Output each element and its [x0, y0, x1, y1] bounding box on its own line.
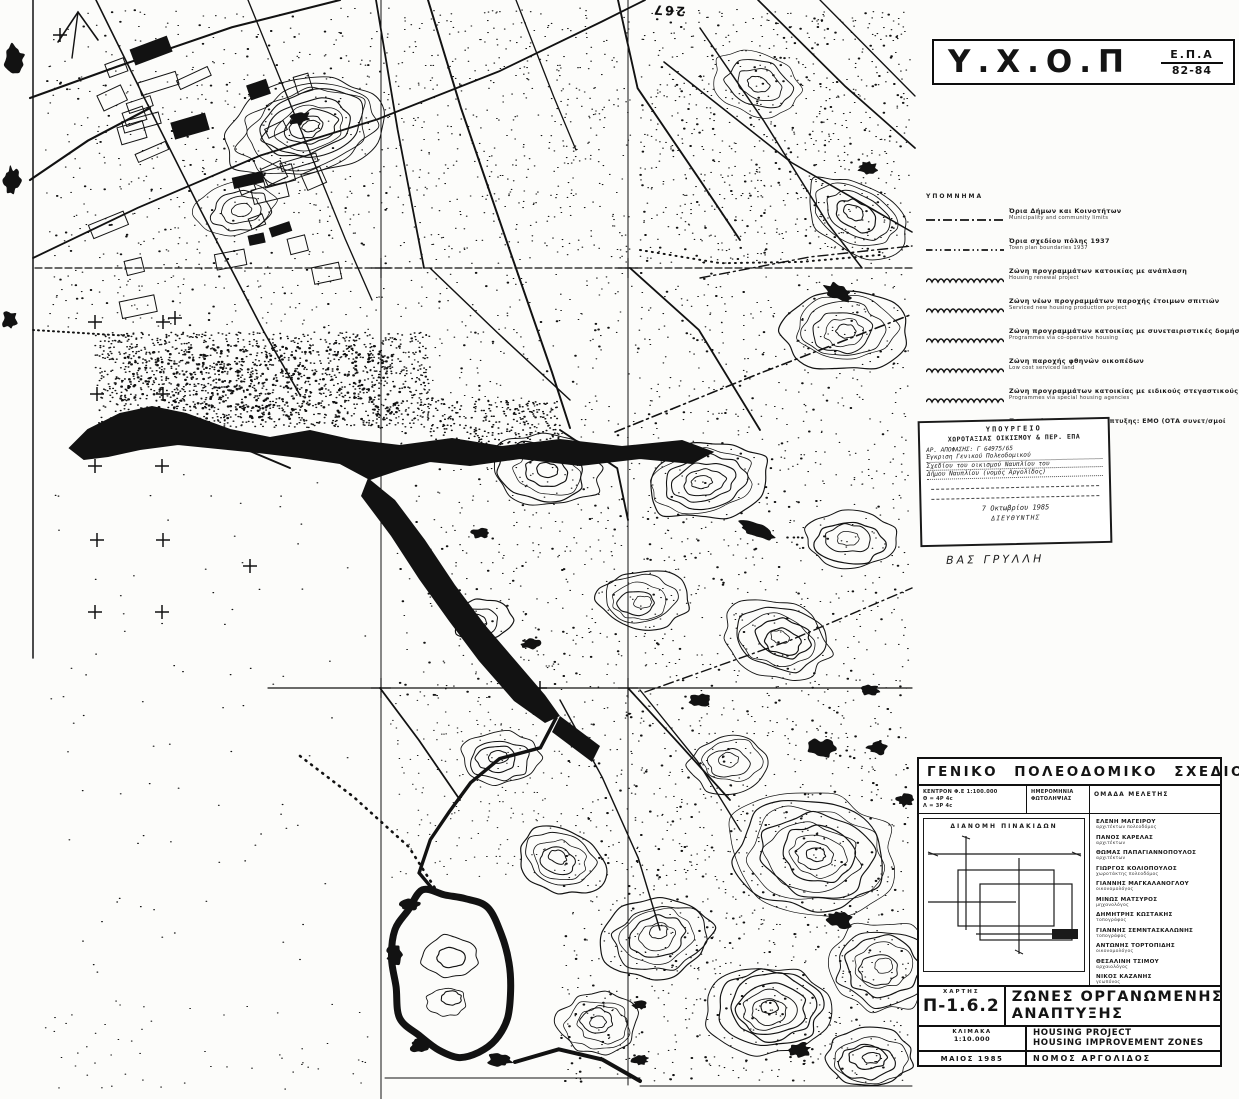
legend-item-sublabel: Programmes via co-operative housing	[1009, 335, 1239, 341]
sheet-index-cell: ΔΙΑΝΟΜΗ ΠΙΝΑΚΙΔΩΝ	[919, 814, 1090, 994]
program-years: 82-84	[1161, 62, 1223, 77]
team-member-role: αρχιτέκτων	[1096, 841, 1218, 846]
team-member: ΘΕΣΑΛΙΝΗ ΤΣΙΜΟΥαρχαιολόγος	[1096, 959, 1218, 970]
team-member: ΔΗΜΗΤΡΗΣ ΚΩΣΤΑΚΗΣτοπογράφος	[1096, 912, 1218, 923]
team-member-role: αρχαιολόγος	[1096, 965, 1218, 970]
map-title-table: ΧΑΡΤΗΣ Π-1.6.2 ΖΩΝΕΣ ΟΡΓΑΝΩΜΕΝΗΣ ΑΝΑΠΤΥΞ…	[917, 985, 1222, 1067]
legend-item-sublabel: Town plan boundaries 1937	[1009, 245, 1110, 251]
photo-center-line: ΚΕΝΤΡΟΝ Φ.Ε 1:100.000	[923, 789, 1022, 796]
legend-item-text: Ζώνη προγραμμάτων κατοικίας με ανάπλασηH…	[1009, 268, 1187, 281]
info-panel-title: ΓΕΝΙΚΟ ΠΟΛΕΟΔΟΜΙΚΟ ΣΧΕΔΙΟ	[919, 759, 1220, 786]
legend-item-label: Ζώνη προγραμμάτων κατοικίας με ειδικούς …	[1009, 388, 1239, 395]
legend-item-sublabel: Housing renewal project	[1009, 275, 1187, 281]
team-member-role: τοπογράφος	[1096, 918, 1218, 923]
legend-item: Ζώνη προγραμμάτων κατοικίας με συνεταιρι…	[926, 328, 1238, 349]
team-member: ΘΩΜΑΣ ΠΑΠΑΓΙΑΝΝΟΠΟΥΛΟΣαρχιτέκτων	[1096, 850, 1218, 861]
scale-cell: ΚΛΙΜΑΚΑ 1:10.000	[919, 1027, 1027, 1050]
map-title-english: HOUSING IMPROVEMENT ZONES	[1033, 1039, 1214, 1049]
sheet-index-label: ΔΙΑΝΟΜΗ ΠΙΝΑΚΙΔΩΝ	[924, 823, 1084, 830]
map-title-cell: ΖΩΝΕΣ ΟΡΓΑΝΩΜΕΝΗΣ ΑΝΑΠΤΥΞΗΣ	[1006, 987, 1230, 1025]
team-member-role: μηχανολόγος	[1096, 903, 1218, 908]
photo-center-line: Θ = 4Ρ 4c	[923, 796, 1022, 803]
legend-item: Όρια Δήμων και ΚοινοτήτωνMunicipality an…	[926, 208, 1238, 229]
legend-item-sublabel: Municipality and community limits	[1009, 215, 1122, 221]
team-member: ΕΛΕΝΗ ΜΑΓΕΙΡΟΥαρχιτέκτων πολεοδόμος	[1096, 819, 1218, 830]
legend-item-sublabel: Programmes via special housing agencies	[1009, 395, 1239, 401]
map-title-en-cell: HOUSING PROJECT HOUSING IMPROVEMENT ZONE…	[1027, 1027, 1220, 1050]
stamp-signature: ΒΑΣ ΓΡΥΛΛΗ	[946, 552, 1045, 567]
program-badge: Ε.Π.Α 82-84	[1161, 48, 1223, 77]
legend-items: Όρια Δήμων και ΚοινοτήτωνMunicipality an…	[926, 208, 1238, 409]
legend-item-text: Ζώνη προγραμμάτων κατοικίας με συνεταιρι…	[1009, 328, 1239, 341]
info-panel: ΓΕΝΙΚΟ ΠΟΛΕΟΔΟΜΙΚΟ ΣΧΕΔΙΟ ΚΕΝΤΡΟΝ Φ.Ε 1:…	[917, 757, 1222, 996]
title-row-3: ΜΑΙΟΣ 1985 ΝΟΜΟΣ ΑΡΓΟΛΙΔΟΣ	[919, 1052, 1220, 1065]
legend-marker-wavy-icon	[926, 330, 1004, 349]
legend-item-text: Ζώνη προγραμμάτων κατοικίας με ειδικούς …	[1009, 388, 1239, 401]
legend-marker-wavy-icon	[926, 270, 1004, 289]
legend-item-label: Όρια Δήμων και Κοινοτήτων	[1009, 208, 1122, 215]
team-member-role: αρχιτέκτων πολεοδόμος	[1096, 825, 1218, 830]
team-member: ΝΙΚΟΣ ΚΑΖΑΝΗΣγεωπόνος	[1096, 974, 1218, 985]
map-title-greek: ΑΝΑΠΤΥΞΗΣ	[1012, 1006, 1224, 1023]
map-number-label: ΧΑΡΤΗΣ	[923, 989, 1000, 995]
legend-item-text: Ζώνη νέων προγραμμάτων παροχής έτοιμων σ…	[1009, 298, 1220, 311]
legend-item: Ζώνη προγραμμάτων κατοικίας με ανάπλασηH…	[926, 268, 1238, 289]
team-member-role: χωροτάκτης πολεοδόμος	[1096, 872, 1218, 877]
team-header-cell: ΟΜΑΔΑ ΜΕΛΕΤΗΣ	[1090, 786, 1220, 813]
legend-marker-wavy-icon	[926, 300, 1004, 319]
agency-title: Υ.Χ.Ο.Π	[948, 44, 1161, 80]
legend-item-text: Όρια Δήμων και ΚοινοτήτωνMunicipality an…	[1009, 208, 1122, 221]
team-member-role: οικονομολόγος	[1096, 887, 1218, 892]
info-panel-header-row: ΚΕΝΤΡΟΝ Φ.Ε 1:100.000 Θ = 4Ρ 4c Λ = 3Ρ 4…	[919, 786, 1220, 814]
photo-date-line: ΦΩΤΟΛΗΨΙΑΣ	[1031, 796, 1085, 803]
map-number: Π-1.6.2	[923, 996, 1000, 1016]
team-member: ΓΙΑΝΝΗΣ ΜΑΓΚΑΛΑΝΟΓΛΟΥοικονομολόγος	[1096, 881, 1218, 892]
legend-marker-dash-dot-icon	[926, 210, 1004, 229]
map-date: ΜΑΙΟΣ 1985	[919, 1052, 1027, 1065]
map-region: ΝΟΜΟΣ ΑΡΓΟΛΙΔΟΣ	[1027, 1052, 1220, 1065]
legend-item-text: Όρια σχεδίου πόλης 1937Town plan boundar…	[1009, 238, 1110, 251]
title-row-2: ΚΛΙΜΑΚΑ 1:10.000 HOUSING PROJECT HOUSING…	[919, 1027, 1220, 1052]
legend-marker-dash-dot-dot-icon	[926, 240, 1004, 259]
legend-item-label: Ζώνη νέων προγραμμάτων παροχής έτοιμων σ…	[1009, 298, 1220, 305]
scanned-map-sheet: { "colors": { "ink": "#141414", "paper":…	[0, 0, 1239, 1099]
sheet-index-box: ΔΙΑΝΟΜΗ ΠΙΝΑΚΙΔΩΝ	[923, 818, 1085, 972]
legend-item-label: Ζώνη παροχής φθηνών οικοπέδων	[1009, 358, 1144, 365]
team-member: ΠΑΝΟΣ ΚΑΡΕΛΑΣαρχιτέκτων	[1096, 835, 1218, 846]
legend-item-sublabel: Low cost serviced land	[1009, 365, 1144, 371]
legend-item: Ζώνη παροχής φθηνών οικοπέδωνLow cost se…	[926, 358, 1238, 379]
legend-item: Ζώνη προγραμμάτων κατοικίας με ειδικούς …	[926, 388, 1238, 409]
legend-item-label: Ζώνη προγραμμάτων κατοικίας με συνεταιρι…	[1009, 328, 1239, 335]
team-member: ΓΙΑΝΝΗΣ ΣΕΜΝΤΑΣΚΑΛΩΝΗΣτοπογράφος	[1096, 928, 1218, 939]
legend-item-label: Ζώνη προγραμμάτων κατοικίας με ανάπλαση	[1009, 268, 1187, 275]
team-member-role: τοπογράφος	[1096, 934, 1218, 939]
legend-item: Όρια σχεδίου πόλης 1937Town plan boundar…	[926, 238, 1238, 259]
map-title-greek: ΖΩΝΕΣ ΟΡΓΑΝΩΜΕΝΗΣ	[1012, 989, 1224, 1006]
program-label: Ε.Π.Α	[1161, 48, 1223, 61]
legend-item-text: Ζώνη παροχής φθηνών οικοπέδωνLow cost se…	[1009, 358, 1144, 371]
legend-marker-wavy-icon	[926, 360, 1004, 379]
team-member-role: οικονομολόγος	[1096, 949, 1218, 954]
legend-item-label: Όρια σχεδίου πόλης 1937	[1009, 238, 1110, 245]
photo-center-cell: ΚΕΝΤΡΟΝ Φ.Ε 1:100.000 Θ = 4Ρ 4c Λ = 3Ρ 4…	[919, 786, 1027, 813]
sheet-index-diagram	[924, 830, 1085, 958]
approval-stamp: ΥΠΟΥΡΓΕΙΟ ΧΩΡΟΤΑΞΙΑΣ ΟΙΚΙΣΜΟΥ & ΠΕΡ. ΕΠΑ…	[918, 417, 1113, 547]
team-member-role: αρχιτέκτων	[1096, 856, 1218, 861]
photo-date-line: ΗΜΕΡΟΜΗΝΙΑ	[1031, 789, 1085, 796]
legend: ΥΠΟΜΝΗΜΑ Όρια Δήμων και ΚοινοτήτωνMunici…	[926, 193, 1238, 432]
stamp-dash-row	[931, 488, 1099, 500]
team-label: ΟΜΑΔΑ ΜΕΛΕΤΗΣ	[1094, 791, 1216, 798]
team-member: ΜΙΝΩΣ ΜΑΤΣΥΡΟΣμηχανολόγος	[1096, 897, 1218, 908]
team-member: ΓΙΩΡΓΟΣ ΚΟΛΙΟΠΟΥΛΟΣχωροτάκτης πολεοδόμος	[1096, 866, 1218, 877]
team-member: ΑΝΤΩΝΗΣ ΤΟΡΤΟΠΙΔΗΣοικονομολόγος	[1096, 943, 1218, 954]
photo-date-cell: ΗΜΕΡΟΜΗΝΙΑ ΦΩΤΟΛΗΨΙΑΣ	[1027, 786, 1090, 813]
legend-heading: ΥΠΟΜΝΗΜΑ	[926, 193, 1238, 200]
team-list: ΕΛΕΝΗ ΜΑΓΕΙΡΟΥαρχιτέκτων πολεοδόμοςΠΑΝΟΣ…	[1090, 814, 1220, 994]
legend-marker-wavy-icon	[926, 390, 1004, 409]
legend-item: Ζώνη νέων προγραμμάτων παροχής έτοιμων σ…	[926, 298, 1238, 319]
scale-value: 1:10.000	[923, 1035, 1021, 1043]
photo-center-line: Λ = 3Ρ 4c	[923, 803, 1022, 810]
title-block: Υ.Χ.Ο.Π Ε.Π.Α 82-84	[932, 39, 1235, 85]
info-panel-main: ΔΙΑΝΟΜΗ ΠΙΝΑΚΙΔΩΝ	[919, 814, 1220, 994]
spot-elevation-label: 267	[652, 1, 686, 18]
title-row-1: ΧΑΡΤΗΣ Π-1.6.2 ΖΩΝΕΣ ΟΡΓΑΝΩΜΕΝΗΣ ΑΝΑΠΤΥΞ…	[919, 987, 1220, 1027]
legend-item-sublabel: Serviced new housing production project	[1009, 305, 1220, 311]
stamp-role: ΔΙΕΥΘΥΝΤΗΣ	[928, 511, 1104, 523]
map-number-cell: ΧΑΡΤΗΣ Π-1.6.2	[919, 987, 1006, 1025]
